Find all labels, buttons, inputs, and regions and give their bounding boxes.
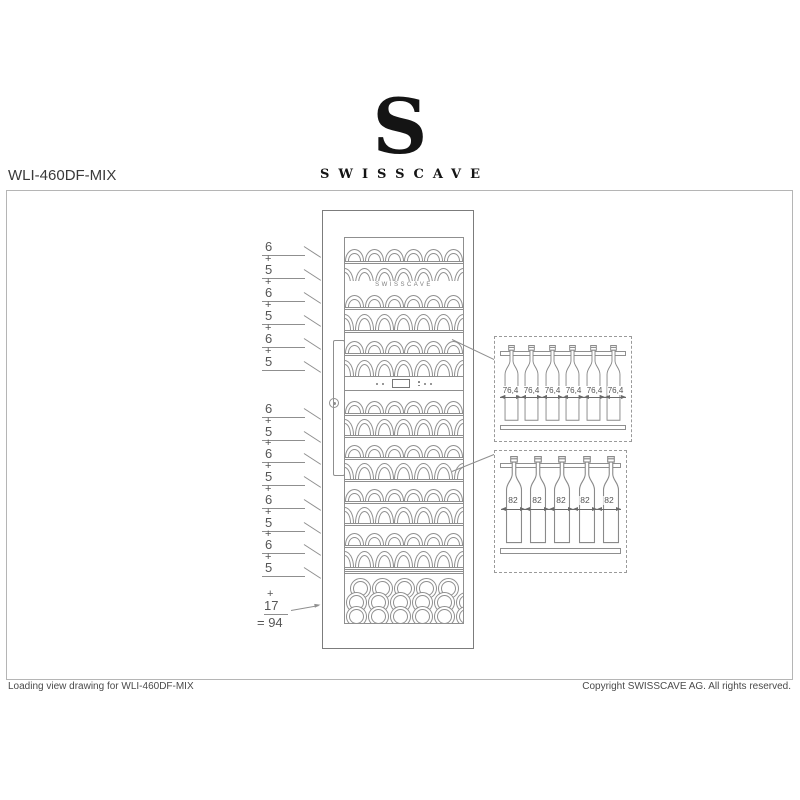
bottle-arc-icon (344, 360, 354, 376)
bottle-arc-icon (345, 295, 364, 307)
bottle-arc-icon (404, 295, 423, 307)
shelf-line (345, 545, 463, 548)
plus-sign: + (265, 484, 271, 494)
dimension-cell: 76,4 (500, 385, 521, 403)
dimension-row: 8282828282 (501, 495, 621, 513)
sum-total: = 94 (257, 615, 283, 630)
plus-sign: + (265, 438, 271, 448)
bottle-arc-icon (345, 533, 364, 545)
door-handle (333, 340, 345, 476)
bottle-arc-icon (444, 533, 463, 545)
dimension-row: 76,476,476,476,476,476,4 (500, 385, 626, 403)
bottle-arc-icon (454, 314, 464, 330)
stack-bottle-icon (346, 606, 367, 624)
bottle-arc-icon (404, 249, 423, 261)
bottle-arc-icon (454, 360, 464, 376)
shelf-line (345, 501, 463, 504)
bottle-arc-icon (355, 419, 374, 435)
bottle-arc-icon (454, 551, 464, 567)
bottle-arc-icon (345, 489, 364, 501)
panel-button (430, 383, 432, 385)
bottle-arc-icon (434, 507, 453, 523)
shelf-line (345, 479, 463, 482)
bottle-arc-icon (394, 551, 413, 567)
dimension-label: 76,4 (523, 386, 541, 395)
bottle-arc-icon (375, 419, 394, 435)
dimension-line-icon (597, 509, 621, 510)
sum-value: 17 (264, 598, 288, 615)
bottle-arc-icon (434, 463, 453, 479)
dimension-line-icon (549, 509, 573, 510)
dimension-cell: 76,4 (542, 385, 563, 403)
shelf-line (345, 261, 463, 264)
bottle-arc-icon (345, 341, 364, 353)
footer-copyright: Copyright SWISSCAVE AG. All rights reser… (582, 681, 791, 692)
shelf-row-bottles (345, 287, 463, 307)
dimension-cell: 82 (573, 495, 597, 513)
door-lock-icon (329, 398, 339, 408)
bottle-arc-icon (365, 533, 384, 545)
shelf-line (345, 457, 463, 460)
footer-caption: Loading view drawing for WLI-460DF-MIX (8, 681, 194, 692)
bottle-arc-icon (385, 401, 404, 413)
shelf-row-bottles (344, 356, 464, 376)
bottle-arc-icon (345, 445, 364, 457)
bottle-arc-icon (365, 295, 384, 307)
bottle-arc-icon (444, 445, 463, 457)
bottle-arc-icon (434, 419, 453, 435)
dimension-line-icon (525, 509, 549, 510)
panel-button (376, 383, 378, 385)
bottle-arc-icon (424, 489, 443, 501)
dimension-line-icon (500, 397, 521, 398)
bottle-arc-icon (424, 341, 443, 353)
bottle-arc-icon (424, 249, 443, 261)
bottle-arc-icon (344, 551, 354, 567)
bottle-arc-icon (355, 314, 374, 330)
shelf-row-bottles (344, 504, 464, 523)
bottle-arc-icon (344, 463, 354, 479)
bottle-arc-icon (444, 249, 463, 261)
shelf-row-bottles (345, 526, 463, 545)
dimension-cell: 82 (597, 495, 621, 513)
swisscave-monogram-icon: S (0, 88, 800, 166)
dimension-cell: 76,4 (563, 385, 584, 403)
bottle-arc-icon (454, 419, 464, 435)
dimension-label: 82 (555, 496, 566, 505)
shelf-row-bottles (345, 438, 463, 457)
bottle-arc-icon (404, 341, 423, 353)
stack-bottle-icon (390, 606, 411, 624)
bottle-arc-icon (424, 445, 443, 457)
bottle-arc-icon (404, 489, 423, 501)
dimension-cell: 76,4 (584, 385, 605, 403)
bottle-arc-icon (394, 360, 413, 376)
shelf-line (345, 523, 463, 526)
dimension-annotation: +5 (262, 561, 308, 577)
shelf-row-bottles (344, 416, 464, 435)
bottle-arc-icon (394, 419, 413, 435)
bottle-arc-icon (355, 507, 374, 523)
dimension-line-icon (573, 509, 597, 510)
bottle-arc-icon (375, 360, 394, 376)
shelf-line (345, 353, 463, 356)
shelf-line (345, 571, 463, 574)
shelf-line (345, 567, 463, 570)
drawing-sheet: S SWISSCAVE WLI-460DF-MIX Loading view d… (0, 0, 800, 800)
bottle-arc-icon (444, 489, 463, 501)
bottle-arc-icon (385, 445, 404, 457)
bottle-arc-icon (355, 360, 374, 376)
panel-indicator (418, 380, 420, 387)
bottle-arc-icon (414, 314, 433, 330)
bottle-arc-icon (414, 507, 433, 523)
bottle-arc-icon (365, 249, 384, 261)
dimension-cell: 82 (525, 495, 549, 513)
bottle-arc-icon (424, 295, 443, 307)
plus-sign: + (265, 529, 271, 539)
bottle-arc-icon (424, 533, 443, 545)
shelf-row-bottles (345, 241, 463, 261)
shelf-row-bottles (345, 482, 463, 501)
dimension-cell: 76,4 (521, 385, 542, 403)
bottle-arc-icon (344, 314, 354, 330)
bottle-arc-icon (434, 314, 453, 330)
bottle-arc-icon (385, 489, 404, 501)
bottle-arc-icon (365, 401, 384, 413)
bottle-arc-icon (404, 533, 423, 545)
dimension-cell: 82 (549, 495, 573, 513)
shelf-row-bottles (344, 548, 464, 567)
dimension-label: 76,4 (586, 386, 604, 395)
bottle-arc-icon (434, 551, 453, 567)
plus-sign: + (265, 461, 271, 471)
bottle-arc-icon (365, 445, 384, 457)
bottle-arc-icon (434, 360, 453, 376)
bottle-arc-icon (365, 341, 384, 353)
dimension-label: 76,4 (607, 386, 625, 395)
bottle-arc-icon (424, 401, 443, 413)
dimension-line-icon (605, 397, 626, 398)
bottle-arc-icon (385, 341, 404, 353)
shelf-line (345, 330, 463, 333)
bottle-arc-icon (444, 401, 463, 413)
dimension-annotation: +5 (262, 355, 308, 371)
stack-bottle-icon (412, 606, 433, 624)
shelf-row-bottles (344, 310, 464, 330)
bottle-arc-icon (375, 551, 394, 567)
dimension-label: 76,4 (565, 386, 583, 395)
bottle-arc-icon (454, 507, 464, 523)
shelf-row-bottles (345, 333, 463, 353)
panel-button (382, 383, 384, 385)
dimension-label: 76,4 (544, 386, 562, 395)
dimension-cell: 82 (501, 495, 525, 513)
shelf-line (345, 435, 463, 438)
door-brand-label: SWISSCAVE (345, 281, 463, 289)
control-panel (345, 376, 463, 391)
bottle-arc-icon (345, 249, 364, 261)
bottle-arc-icon (404, 401, 423, 413)
dimension-label: 82 (603, 496, 614, 505)
shelf-rail (500, 425, 626, 430)
dimension-cell: 76,4 (605, 385, 626, 403)
dimension-line-icon (542, 397, 563, 398)
plus-sign: + (265, 277, 271, 287)
bottle-arc-icon (444, 295, 463, 307)
dimension-line-icon (521, 397, 542, 398)
stack-bottle-icon (456, 606, 465, 624)
plus-sign: + (265, 552, 271, 562)
cabinet-door: SWISSCAVE (344, 237, 464, 624)
stack-row (345, 606, 463, 624)
bottle-arc-icon (404, 445, 423, 457)
panel-button (424, 383, 426, 385)
shelf-line (345, 307, 463, 310)
bottle-arc-icon (414, 551, 433, 567)
dimension-line-icon (584, 397, 605, 398)
swisscave-wordmark: SWISSCAVE (0, 167, 800, 182)
dimension-line-icon (563, 397, 584, 398)
shelf-row-bottles (345, 394, 463, 413)
bottle-arc-icon (355, 551, 374, 567)
dimension-value: 5 (262, 355, 305, 371)
plus-sign: + (265, 323, 271, 333)
page-title: WLI-460DF-MIX (8, 167, 116, 184)
bottle-arc-icon (345, 401, 364, 413)
plus-sign: + (265, 346, 271, 356)
bottle-arc-icon (394, 507, 413, 523)
dimension-label: 82 (579, 496, 590, 505)
plus-sign: + (265, 300, 271, 310)
dimension-label: 76,4 (502, 386, 520, 395)
bottle-arc-icon (385, 249, 404, 261)
bottle-arc-icon (355, 463, 374, 479)
stack-bottle-icon (434, 606, 455, 624)
bottle-arc-icon (394, 463, 413, 479)
bottle-arc-icon (375, 463, 394, 479)
dimension-line-icon (501, 509, 525, 510)
bottle-arc-icon (394, 314, 413, 330)
bottle-arc-icon (375, 314, 394, 330)
upper-shelf-detail-callout: 76,476,476,476,476,476,4 (494, 336, 632, 442)
bottle-arc-icon (385, 533, 404, 545)
bottle-arc-icon (414, 419, 433, 435)
lower-shelf-detail-callout: 8282828282 (494, 450, 627, 573)
plus-sign: + (265, 254, 271, 264)
bottle-arc-icon (365, 489, 384, 501)
plus-sign: + (265, 507, 271, 517)
bottle-arc-icon (385, 295, 404, 307)
shelf-line (345, 413, 463, 416)
bottle-arc-icon (344, 419, 354, 435)
dimension-label: 82 (507, 496, 518, 505)
bottle-arc-icon (414, 463, 433, 479)
panel-display (392, 379, 410, 388)
bottle-arc-icon (344, 507, 354, 523)
bottle-arc-icon (375, 507, 394, 523)
bottle-arc-icon (414, 360, 433, 376)
plus-sign: + (265, 416, 271, 426)
stack-bottle-icon (368, 606, 389, 624)
shelf-row-bottles (344, 460, 464, 479)
dimension-label: 82 (531, 496, 542, 505)
shelf-rail (500, 548, 621, 554)
dimension-value: 5 (262, 561, 305, 577)
